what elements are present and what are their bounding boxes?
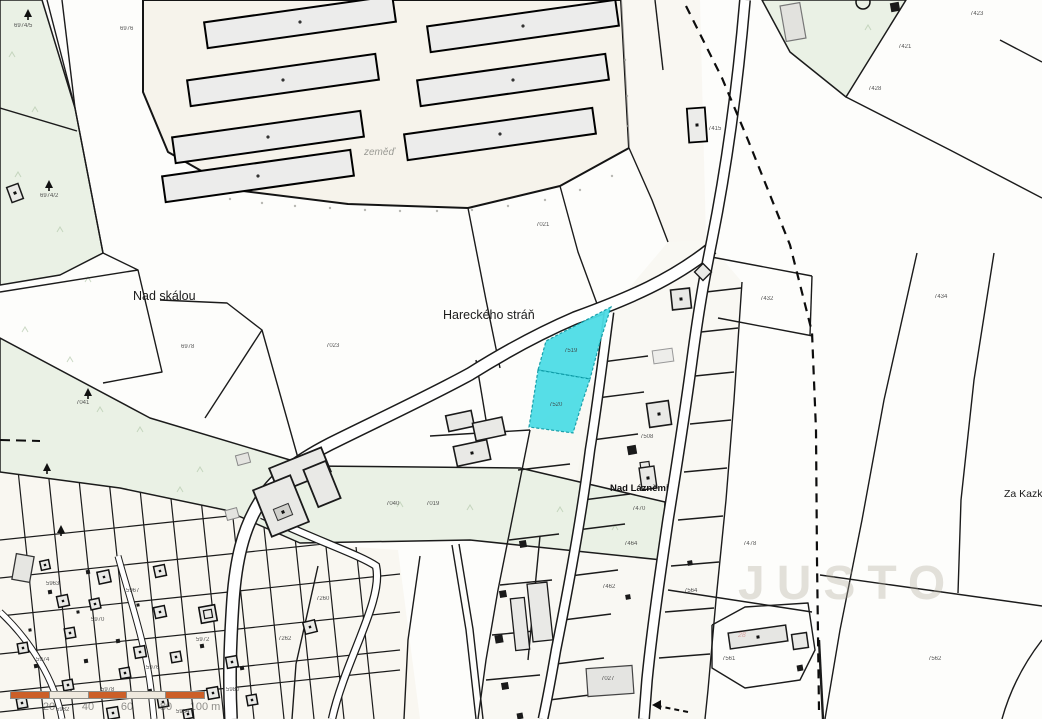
house-mark-icon (251, 699, 254, 702)
house-symbol (226, 656, 239, 669)
parcel-line (1000, 40, 1042, 62)
house-mark-icon (69, 632, 72, 635)
outbuilding-symbol (797, 665, 804, 672)
survey-dot (579, 189, 581, 191)
parcel-line (846, 97, 1042, 198)
place-label-hareckeho-stran: Hareckého stráň (443, 309, 535, 322)
parcel-number: 5984 (176, 709, 190, 715)
house-mark-icon (21, 702, 24, 705)
parcel-line (459, 544, 483, 719)
survey-dot (436, 210, 438, 212)
parcel-number: 7415 (708, 126, 722, 132)
house-symbol (246, 694, 258, 706)
outbuilding-symbol (86, 570, 91, 575)
building-rect (792, 633, 809, 650)
house-mark-icon (103, 576, 106, 579)
house-symbol (62, 679, 74, 691)
building-symbol (453, 440, 490, 467)
parcel-number: 7464 (624, 541, 638, 547)
house-symbol (17, 642, 29, 654)
house-symbol (134, 646, 147, 659)
parcel-number: 5963 (46, 581, 60, 587)
parcel-number: 7434 (934, 294, 948, 300)
parcel-number: 7519 (564, 348, 578, 354)
house-symbol (207, 687, 220, 700)
parcel-number: 7561 (722, 656, 736, 662)
parcel-line (958, 253, 994, 593)
parcel-number: 7564 (684, 588, 698, 594)
parcel-number: 7262 (278, 636, 292, 642)
scale-tick-label: 40 (82, 702, 94, 713)
tree-trunk (48, 188, 50, 191)
house-mark-icon (139, 651, 142, 654)
parcel-number: 6974/5 (14, 23, 33, 29)
house-symbol (107, 707, 120, 719)
parcel-line (560, 186, 600, 312)
building-rect (12, 554, 34, 583)
outbuilding-symbol (240, 666, 245, 671)
house-symbol (97, 570, 111, 584)
survey-dot (399, 210, 401, 212)
building-symbol (687, 107, 707, 142)
scale-tick-label: 80 (160, 702, 172, 713)
house-symbol (303, 620, 318, 635)
scale-bar-segment (89, 692, 128, 698)
survey-dot (261, 202, 263, 204)
survey-dot (364, 209, 366, 211)
house-symbol (153, 605, 166, 618)
parcel-number: 7562 (928, 656, 942, 662)
building-symbol (671, 288, 692, 310)
house-mark-icon (67, 684, 70, 687)
house-mark-icon (62, 600, 65, 603)
vegetation-mark (22, 327, 28, 332)
parcel-number: 7023 (326, 343, 340, 349)
dashed-boundary (0, 440, 40, 441)
scale-bar-segment (166, 692, 204, 698)
outbuilding-symbol (625, 594, 631, 600)
parcel-line (468, 208, 500, 368)
house-rect (199, 605, 218, 624)
outbuilding-symbol (76, 610, 79, 613)
building-rect (652, 348, 674, 364)
building-mark-icon (679, 297, 682, 300)
parcel-number: 5972 (196, 637, 210, 643)
survey-dot (627, 125, 629, 127)
survey-dot (229, 198, 231, 200)
scale-bar-segment (50, 692, 89, 698)
outbuilding-symbol (48, 590, 53, 595)
parcel-number: 5976 (146, 665, 160, 671)
building-symbol (646, 401, 671, 428)
place-label-nad-laznemi: Nad Lázněmi (610, 484, 669, 494)
building-symbol (792, 633, 809, 650)
scale-bar (10, 691, 205, 699)
parcel-number: 7508 (640, 434, 654, 440)
parcel-line (1002, 640, 1042, 719)
parcel-number: 7470 (632, 506, 646, 512)
building-mark-icon (695, 123, 698, 126)
house-symbol (89, 598, 101, 610)
parcel-number: 6976 (120, 26, 134, 32)
survey-dot (624, 59, 626, 61)
map-viewport[interactable]: 69766974/56974/2704169787023702174217423… (0, 0, 1042, 719)
outbuilding-symbol (499, 590, 507, 598)
house-symbol (119, 667, 131, 679)
parcel-number: 5974 (36, 657, 50, 663)
parcel-number: 7462 (602, 584, 616, 590)
parcel-number: 7421 (898, 44, 912, 50)
building-symbol (12, 554, 34, 583)
outbuilding-symbol (517, 713, 524, 719)
parcel-number: 7021 (536, 222, 550, 228)
survey-dot (626, 95, 628, 97)
building-mark-icon (756, 635, 759, 638)
house-symbol (153, 564, 166, 577)
building-rect (446, 410, 475, 431)
transformer-house-symbol (199, 605, 218, 624)
parcel-number: 5970 (91, 617, 105, 623)
parcel-number: 7432 (760, 296, 774, 302)
outbuilding-symbol (34, 664, 39, 669)
survey-dot (507, 205, 509, 207)
outbuilding-symbol (501, 682, 509, 690)
parcel-line (205, 330, 262, 418)
tree-trunk (27, 17, 29, 20)
parcel-number: 7041 (76, 400, 90, 406)
house-mark-icon (44, 564, 47, 567)
survey-dot (471, 209, 473, 211)
outbuilding-symbol (136, 603, 139, 606)
house-mark-icon (112, 712, 115, 715)
parcel-number: 7040 (386, 501, 400, 507)
survey-dot (329, 207, 331, 209)
house-mark-icon (159, 570, 162, 573)
building-mark-icon (657, 412, 660, 415)
parcel-number: 7423 (970, 11, 984, 17)
survey-dot (611, 175, 613, 177)
parcel-number: 7260 (316, 596, 330, 602)
place-label-za-kazk: Za Kazk (1004, 489, 1042, 500)
cadastral-map: 69766974/56974/2704169787023702174217423… (0, 0, 1042, 719)
parcel-number: 5982 (56, 707, 70, 713)
scale-tick-label: 60 (121, 702, 133, 713)
parcel-number: 5967 (126, 588, 140, 594)
parcel-number: 7019 (426, 501, 440, 507)
outbuilding-symbol (890, 2, 900, 12)
house-mark-icon (231, 661, 234, 664)
tree-trunk (60, 533, 62, 536)
parcel-number: 7478 (743, 541, 757, 547)
parcel-number: 7520 (549, 402, 563, 408)
scale-bar-segment (11, 692, 50, 698)
house-symbol (56, 594, 69, 607)
tree-trunk (87, 396, 89, 399)
parcel-number: 7027 (601, 676, 615, 682)
scale-tick-label: 20 (43, 702, 55, 713)
outbuilding-symbol (627, 445, 637, 455)
building-mark-icon (470, 451, 474, 455)
house-symbol (64, 627, 76, 639)
survey-dot (544, 199, 546, 201)
house-mark-icon (124, 672, 127, 675)
outbuilding-symbol (116, 639, 121, 644)
parcel-line (820, 575, 1042, 606)
house-mark-icon (22, 647, 25, 650)
micro-note: 28 (738, 632, 746, 639)
scale-bar-segment (127, 692, 166, 698)
outbuilding-symbol (687, 560, 693, 566)
house-mark-icon (94, 603, 97, 606)
place-label-nad-skalou: Nad skálou (133, 290, 196, 303)
house-symbol (40, 560, 51, 571)
building-symbol (652, 348, 674, 364)
house-mark-icon (212, 692, 215, 695)
forest-area (0, 0, 103, 285)
vegetation-mark (67, 357, 73, 362)
outbuilding-symbol (200, 644, 205, 649)
house-mark-icon (175, 656, 178, 659)
building-symbol (446, 410, 475, 431)
outbuilding-symbol (494, 634, 503, 643)
parcel-line (103, 253, 162, 383)
house-mark-icon (159, 611, 162, 614)
building-symbol (472, 417, 505, 441)
survey-dot (294, 205, 296, 207)
parcel-line (825, 253, 917, 719)
tree-trunk (46, 471, 48, 474)
building-rect (472, 417, 505, 441)
building-mark-icon (646, 476, 649, 479)
parcel-number: 7428 (868, 86, 882, 92)
parcel-number: 6978 (181, 344, 195, 350)
parcel-number: 5980 (226, 687, 240, 693)
house-symbol (170, 651, 182, 663)
outbuilding-symbol (519, 540, 527, 548)
place-label-zemed: zeměď (364, 148, 395, 158)
outbuilding-symbol (84, 659, 89, 664)
outbuilding-symbol (28, 628, 31, 631)
scale-tick-label: 100 m (190, 702, 221, 713)
parcel-number: 6974/2 (40, 193, 59, 199)
